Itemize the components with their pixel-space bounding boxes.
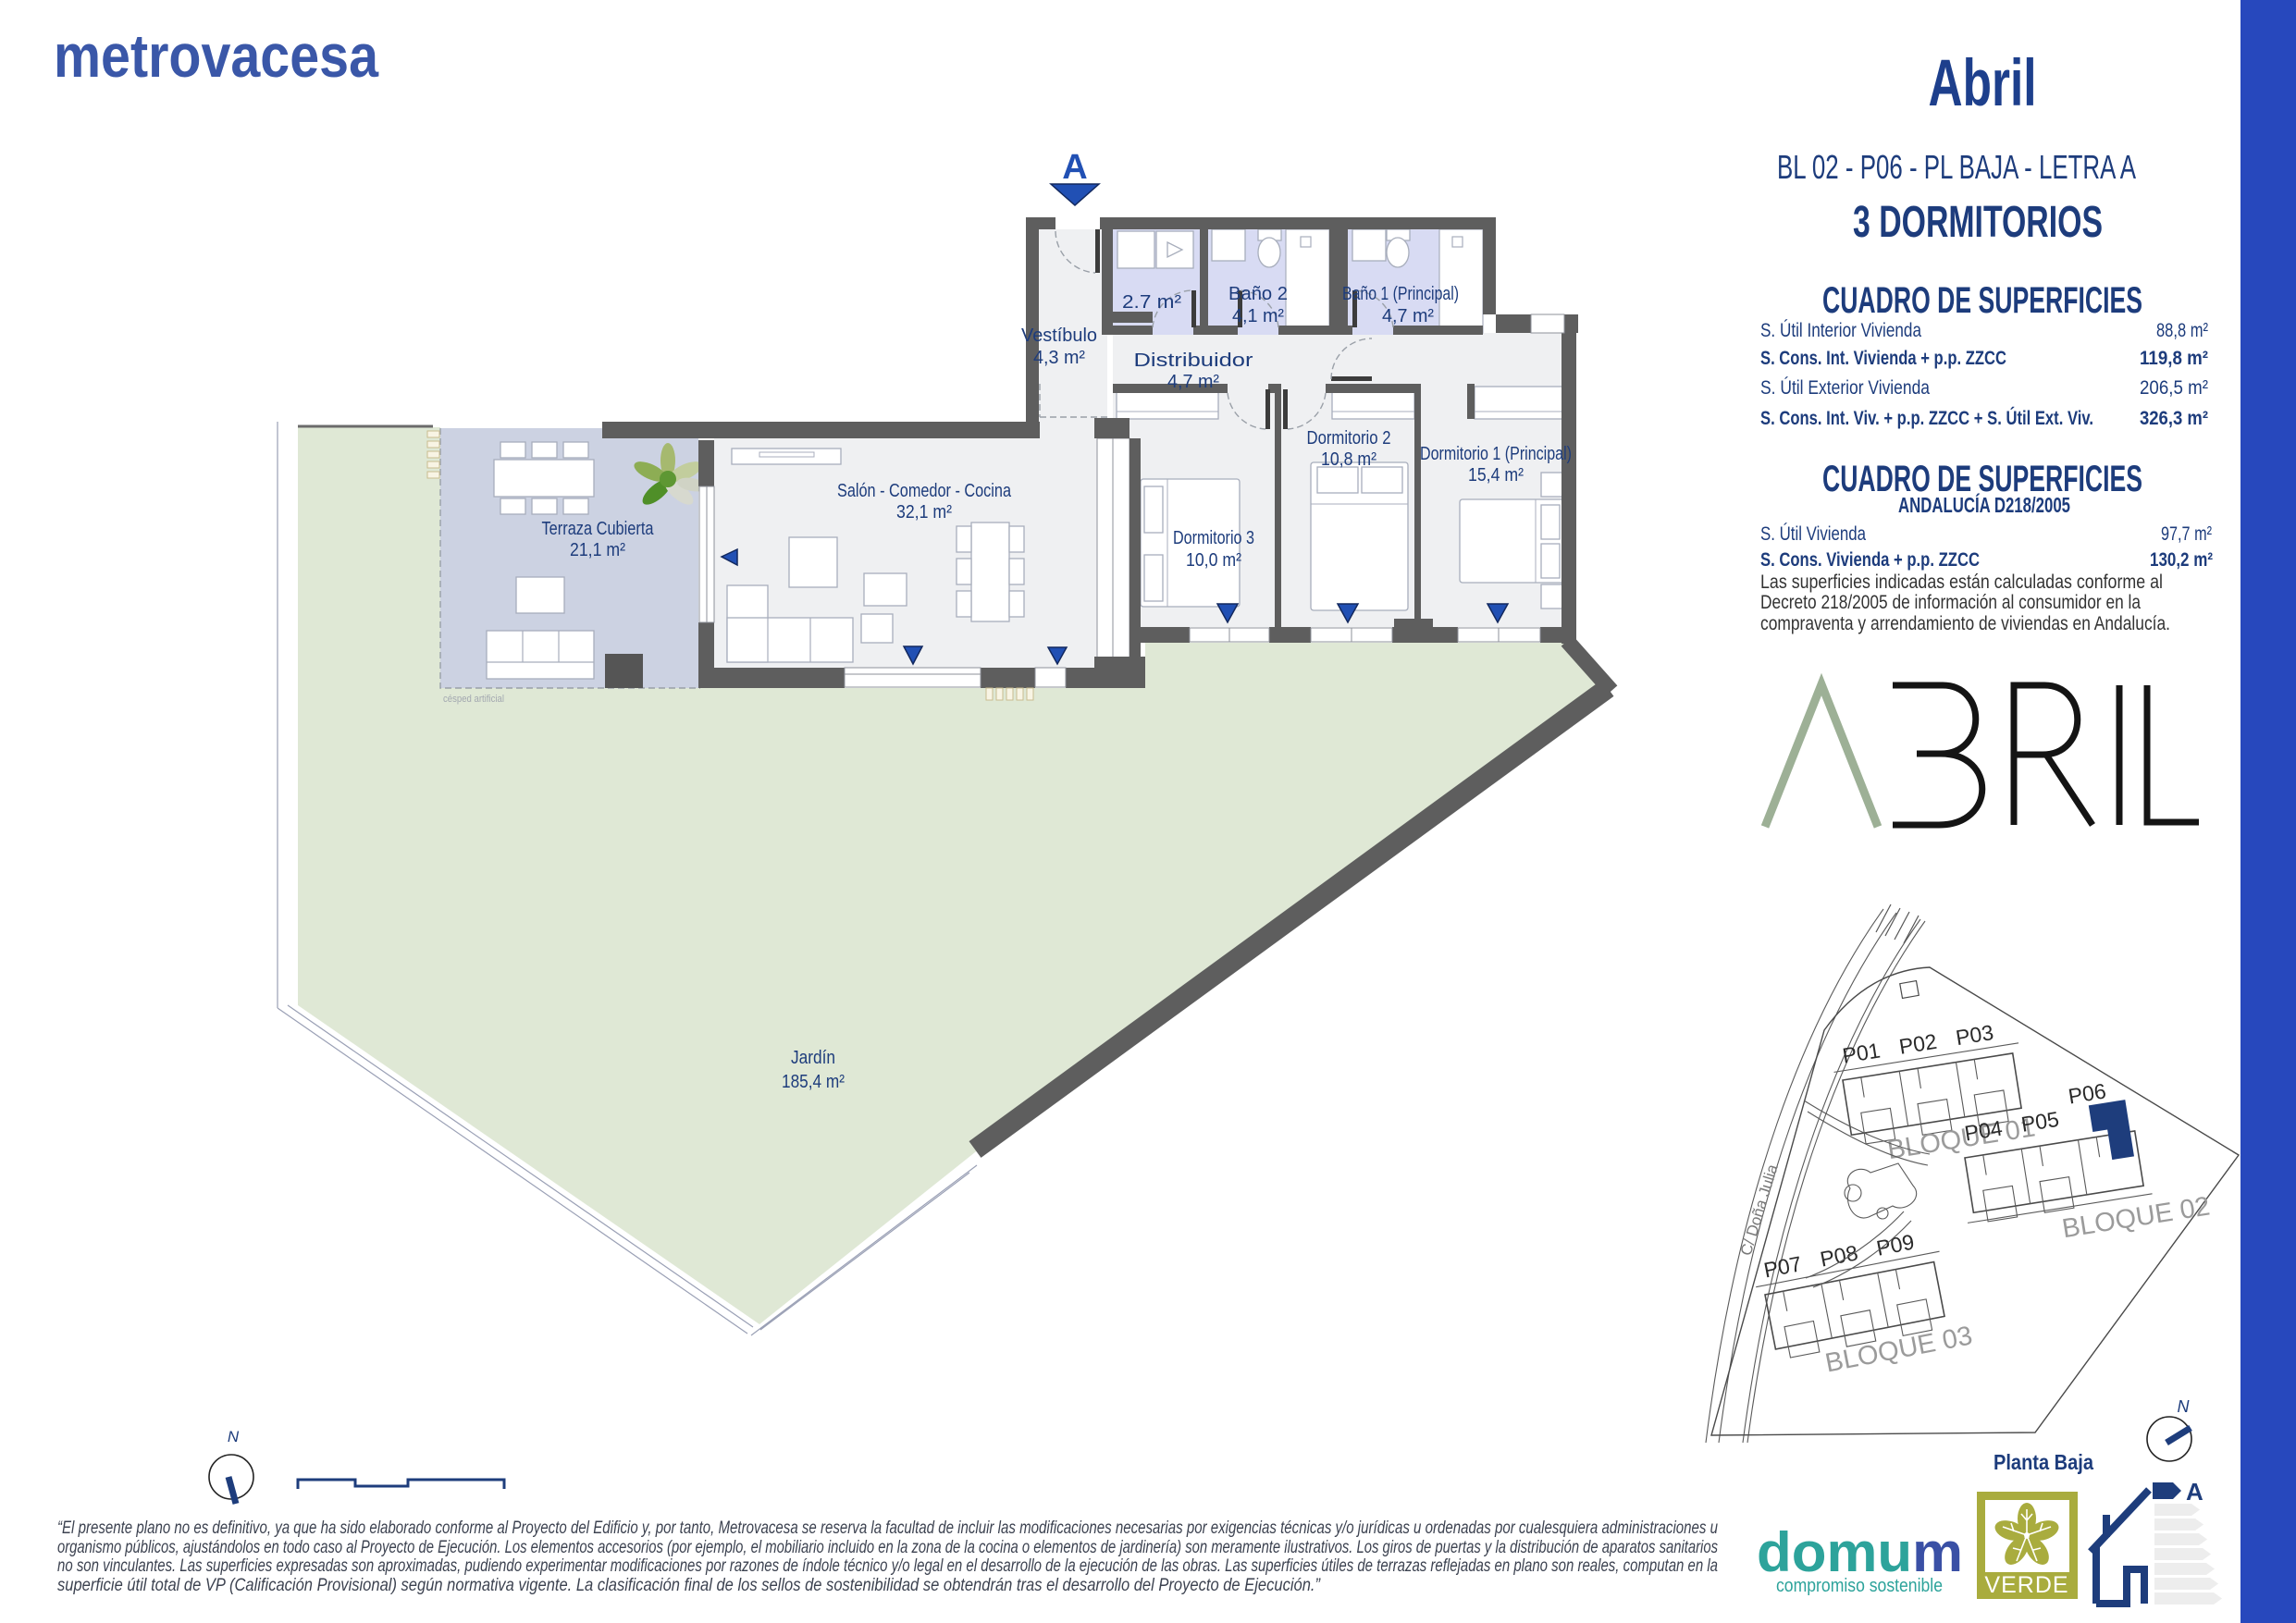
svg-text:21,1 m²: 21,1 m² [570,540,625,560]
svg-text:Distribuidor: Distribuidor [1134,350,1253,371]
svg-text:superficie útil total de VP (C: superficie útil total de VP (Calificació… [57,1576,1321,1595]
svg-text:S. Cons. Vivienda + p.p. ZZCC: S. Cons. Vivienda + p.p. ZZCC [1760,549,1980,571]
svg-text:Dormitorio 1 (Principal): Dormitorio 1 (Principal) [1420,444,1572,464]
svg-text:Baño 2: Baño 2 [1228,284,1288,304]
svg-text:326,3 m²: 326,3 m² [2140,408,2208,429]
svg-text:compromiso sostenible: compromiso sostenible [1776,1576,1943,1596]
svg-text:ANDALUCÍA D218/2005: ANDALUCÍA D218/2005 [1898,492,2070,517]
svg-text:A: A [2186,1478,2203,1506]
svg-text:“El presente plano no es defin: “El presente plano no es definitivo, ya … [57,1518,1718,1538]
svg-text:Abril: Abril [1929,47,2037,120]
svg-text:10,0 m²: 10,0 m² [1186,550,1241,571]
svg-text:4,7 m²: 4,7 m² [1382,306,1434,326]
svg-text:88,8 m²: 88,8 m² [2156,320,2208,341]
svg-text:organismo públicos, ajustándol: organismo públicos, ajustándolos en todo… [57,1538,1718,1557]
svg-text:185,4 m²: 185,4 m² [782,1072,845,1092]
svg-text:15,4 m²: 15,4 m² [1468,465,1524,486]
svg-text:S. Cons. Int. Vivienda + p.p.: S. Cons. Int. Vivienda + p.p. ZZCC [1760,348,2006,369]
svg-text:domum: domum [1757,1521,1963,1583]
svg-text:compraventa y arrendamiento de: compraventa y arrendamiento de viviendas… [1760,613,2170,634]
svg-text:2.7 m²: 2.7 m² [1122,292,1181,313]
svg-text:Dormitorio 3: Dormitorio 3 [1173,528,1254,548]
svg-text:VERDE: VERDE [1984,1572,2068,1598]
svg-text:4,7 m²: 4,7 m² [1167,372,1219,392]
svg-text:119,8 m²: 119,8 m² [2140,348,2208,369]
svg-text:N: N [228,1428,240,1445]
svg-text:Dormitorio 2: Dormitorio 2 [1307,428,1391,449]
svg-text:97,7 m²: 97,7 m² [2161,523,2212,545]
svg-text:S. Cons. Int. Viv. + p.p. ZZCC: S. Cons. Int. Viv. + p.p. ZZCC + S. Útil… [1760,407,2093,429]
svg-text:4,3 m²: 4,3 m² [1033,348,1085,368]
svg-text:Planta Baja: Planta Baja [1994,1450,2093,1474]
svg-text:S. Útil Interior Vivienda: S. Útil Interior Vivienda [1760,320,1921,341]
svg-text:metrovacesa: metrovacesa [54,21,379,90]
svg-text:BL 02 - P06 - PL BAJA - LETRA: BL 02 - P06 - PL BAJA - LETRA A [1777,148,2136,186]
svg-text:no son vinculantes. Las superf: no son vinculantes. Las superficies expr… [57,1556,1718,1576]
svg-text:N: N [2178,1397,2191,1416]
svg-text:S. Útil Exterior Vivienda: S. Útil Exterior Vivienda [1760,377,1930,399]
svg-text:4,1 m²: 4,1 m² [1232,306,1284,326]
svg-text:S. Útil Vivienda: S. Útil Vivienda [1760,523,1866,545]
svg-text:Las superficies indicadas está: Las superficies indicadas están calculad… [1760,572,2163,593]
svg-text:3 DORMITORIOS: 3 DORMITORIOS [1853,198,2103,247]
svg-text:A: A [1062,148,1087,187]
svg-text:Baño 1 (Principal): Baño 1 (Principal) [1342,284,1459,304]
svg-text:césped artificial: césped artificial [443,694,504,705]
svg-text:130,2 m²: 130,2 m² [2150,549,2213,571]
svg-text:Vestíbulo: Vestíbulo [1021,326,1097,346]
svg-text:32,1 m²: 32,1 m² [896,502,952,523]
svg-text:Decreto 218/2005 de informació: Decreto 218/2005 de información al consu… [1760,592,2141,613]
svg-text:Salón - Comedor - Cocina: Salón - Comedor - Cocina [837,481,1012,501]
svg-text:Terraza Cubierta: Terraza Cubierta [542,519,655,539]
svg-text:206,5 m²: 206,5 m² [2140,377,2208,399]
svg-text:Jardín: Jardín [791,1048,835,1068]
svg-text:CUADRO DE SUPERFICIES: CUADRO DE SUPERFICIES [1822,280,2142,321]
svg-text:10,8 m²: 10,8 m² [1321,449,1376,470]
